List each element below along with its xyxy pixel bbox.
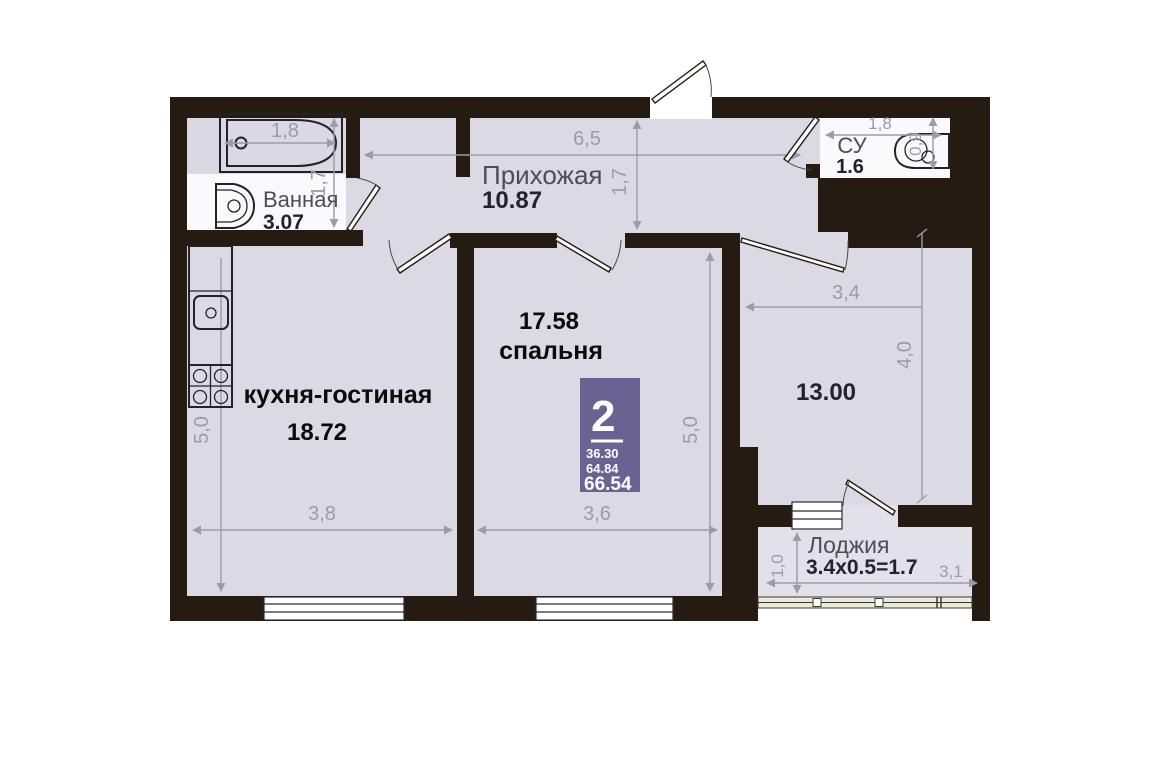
loggia-width-dim: 3,1 bbox=[939, 562, 963, 581]
wc-width-dim: 1,8 bbox=[868, 114, 892, 133]
bedroom-name: спальня bbox=[499, 337, 603, 365]
bathroom-name: Ванная bbox=[263, 187, 338, 212]
bathroom-width-dim: 1,8 bbox=[271, 120, 299, 142]
wall-band-below-wc bbox=[818, 178, 990, 232]
wall-bathroom-right bbox=[346, 97, 360, 178]
badge-value1: 36.30 bbox=[586, 446, 619, 461]
badge-rooms-count: 2 bbox=[591, 392, 615, 441]
wall-hallway-pier bbox=[456, 115, 470, 177]
living-area: 13.00 bbox=[796, 379, 856, 406]
wall-top-right bbox=[712, 97, 990, 118]
hallway-name: Прихожая bbox=[482, 160, 602, 190]
hallway-width-dim: 6,5 bbox=[573, 128, 601, 150]
loggia-depth-dim: 1,0 bbox=[768, 554, 787, 578]
living-loggia-window bbox=[792, 502, 842, 529]
wall-living-bottom-right bbox=[898, 505, 990, 527]
kitchen-depth-dim: 5,0 bbox=[191, 416, 213, 444]
bedroom-area: 17.58 bbox=[519, 308, 579, 335]
wall-living-top bbox=[848, 232, 990, 248]
living-width-dim: 3,4 bbox=[832, 282, 860, 304]
bathroom-area: 3.07 bbox=[263, 211, 304, 234]
wc-area: 1.6 bbox=[836, 156, 864, 178]
wc-name: СУ bbox=[837, 133, 867, 158]
wall-loggia-left bbox=[740, 447, 758, 621]
loggia-formula: 3.4x0.5=1.7 bbox=[806, 556, 918, 579]
floor-plan-page: 1,8 1,7 6,5 1,7 1,8 0,9 3,8 5,0 3,6 5,0 … bbox=[0, 0, 1167, 759]
wall-bedroom-living bbox=[722, 233, 740, 596]
wall-kitchen-bedroom bbox=[457, 233, 474, 596]
wall-wc-left-stub bbox=[806, 164, 820, 178]
kitchen-stove bbox=[189, 365, 232, 407]
kitchen-name: кухня-гостиная bbox=[244, 381, 433, 409]
kitchen-width-dim: 3,8 bbox=[308, 503, 336, 525]
kitchen-area: 18.72 bbox=[287, 419, 347, 446]
apartment-badge: 2 36.30 64.84 66.54 bbox=[580, 378, 640, 495]
wall-right bbox=[972, 97, 990, 621]
badge-total-area: 66.54 bbox=[584, 474, 632, 495]
wall-wc-right bbox=[950, 115, 972, 178]
hallway-depth-dim: 1,7 bbox=[609, 168, 631, 196]
loggia-name: Лоджия bbox=[808, 532, 890, 558]
wc-depth-dim: 0,9 bbox=[906, 132, 925, 156]
floor-plan-drawing: 1,8 1,7 6,5 1,7 1,8 0,9 3,8 5,0 3,6 5,0 … bbox=[0, 0, 1167, 759]
loggia-glazing bbox=[758, 597, 972, 608]
living-depth-dim: 4,0 bbox=[894, 341, 916, 369]
bedroom-width-dim: 3,6 bbox=[583, 503, 611, 525]
bedroom-depth-dim: 5,0 bbox=[680, 416, 702, 444]
hallway-area: 10.87 bbox=[482, 187, 542, 214]
kitchen-window bbox=[264, 597, 404, 620]
wall-living-bottom-left bbox=[756, 505, 792, 527]
wall-left bbox=[170, 97, 187, 621]
bedroom-window bbox=[536, 597, 673, 620]
